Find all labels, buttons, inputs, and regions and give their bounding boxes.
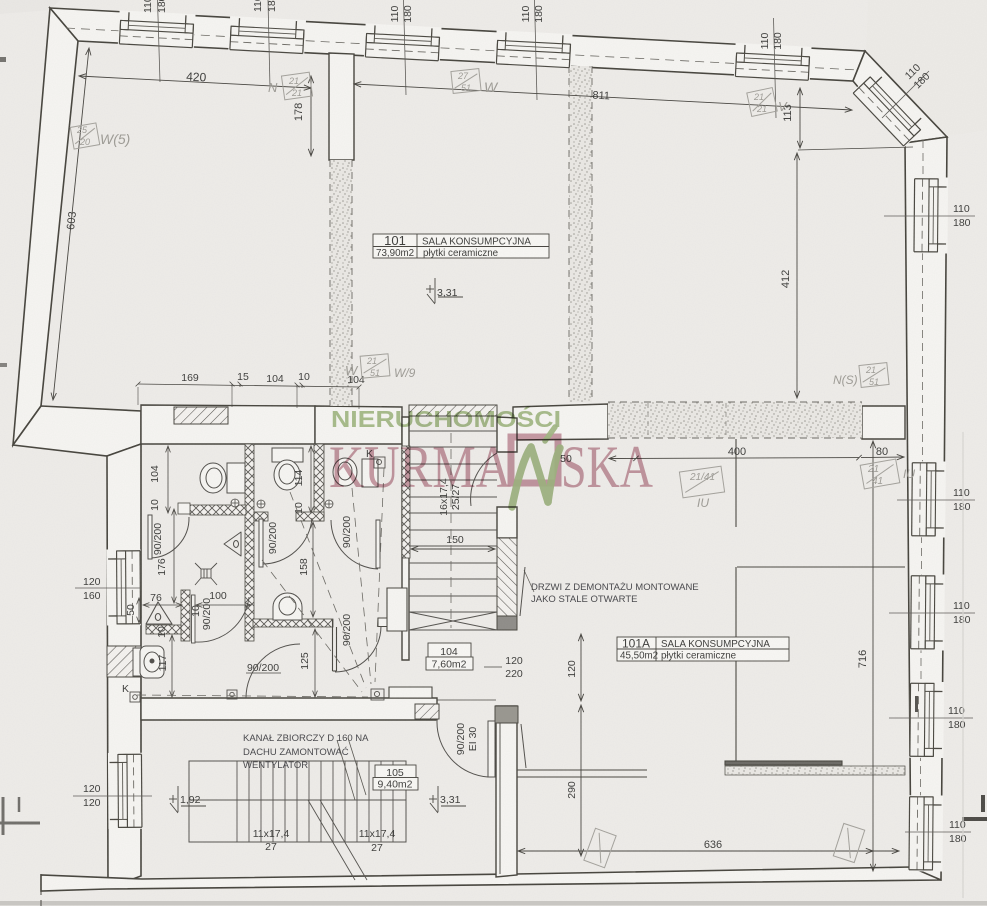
svg-text:811: 811 (592, 90, 610, 103)
svg-text:10: 10 (293, 502, 305, 514)
svg-text:110: 110 (142, 0, 154, 13)
svg-text:21: 21 (867, 464, 879, 475)
svg-text:110: 110 (252, 0, 264, 12)
svg-text:11x17,4: 11x17,4 (359, 828, 396, 840)
svg-text:W(5): W(5) (100, 131, 130, 147)
svg-text:125: 125 (299, 652, 311, 670)
svg-text:73,90m2: 73,90m2 (376, 248, 414, 259)
svg-text:110: 110 (520, 5, 532, 22)
svg-text:płytki ceramiczne: płytki ceramiczne (423, 248, 499, 259)
svg-text:120: 120 (83, 797, 101, 809)
svg-text:20: 20 (79, 137, 90, 147)
svg-text:90/200: 90/200 (341, 614, 353, 646)
svg-text:180: 180 (949, 833, 967, 845)
svg-text:10: 10 (149, 499, 161, 511)
svg-text:90/200: 90/200 (267, 522, 279, 554)
svg-text:W: W (484, 79, 499, 95)
svg-text:220: 220 (505, 668, 523, 680)
svg-text:90/200: 90/200 (201, 598, 213, 630)
svg-text:180: 180 (156, 0, 168, 13)
svg-text:110: 110 (953, 203, 970, 215)
svg-text:400: 400 (728, 446, 746, 458)
svg-text:105: 105 (386, 767, 404, 779)
svg-text:W: W (345, 363, 359, 378)
svg-text:3,31: 3,31 (437, 287, 458, 299)
svg-text:IU: IU (697, 496, 709, 510)
svg-text:N(S): N(S) (833, 373, 858, 387)
svg-text:180: 180 (402, 5, 414, 23)
svg-text:45,50m2: 45,50m2 (620, 651, 658, 662)
svg-text:10: 10 (298, 371, 310, 383)
svg-text:180: 180 (533, 5, 545, 23)
svg-text:1,92: 1,92 (180, 794, 201, 806)
svg-text:110: 110 (953, 487, 970, 499)
svg-text:290: 290 (566, 781, 578, 799)
svg-text:180: 180 (953, 501, 971, 513)
svg-text:7,60m2: 7,60m2 (431, 659, 466, 671)
svg-text:W/9: W/9 (394, 366, 416, 380)
svg-text:N: N (268, 80, 278, 95)
svg-text:110: 110 (759, 32, 771, 49)
svg-text:NIERUCHOMOŚCI: NIERUCHOMOŚCI (331, 405, 561, 432)
svg-text:51: 51 (869, 377, 879, 387)
svg-text:15: 15 (237, 371, 249, 383)
svg-text:25: 25 (76, 125, 88, 135)
svg-text:176: 176 (156, 558, 168, 576)
svg-text:10: 10 (156, 626, 168, 638)
svg-text:DRZWI Z DEMONTAŻU MONTOWANE: DRZWI Z DEMONTAŻU MONTOWANE (531, 582, 699, 593)
svg-text:117: 117 (157, 654, 169, 671)
svg-text:716: 716 (857, 650, 869, 668)
svg-text:płytki ceramiczne: płytki ceramiczne (661, 651, 737, 662)
svg-text:WENTYLATOR: WENTYLATOR (243, 760, 308, 771)
svg-text:21/41: 21/41 (689, 472, 715, 483)
svg-text:27: 27 (265, 841, 277, 853)
svg-text:27: 27 (457, 71, 469, 81)
svg-text:104: 104 (440, 646, 458, 658)
svg-text:160: 160 (83, 590, 101, 602)
svg-text:114: 114 (293, 469, 305, 486)
svg-text:21: 21 (288, 76, 299, 86)
svg-text:51: 51 (461, 83, 471, 93)
svg-text:76: 76 (150, 592, 162, 604)
svg-text:SKA: SKA (561, 434, 653, 500)
svg-text:120: 120 (505, 655, 523, 667)
svg-text:21: 21 (366, 356, 377, 366)
svg-text:EI 30: EI 30 (467, 727, 479, 752)
svg-text:110: 110 (389, 5, 401, 22)
svg-text:90/200: 90/200 (152, 523, 164, 555)
svg-text:21: 21 (291, 88, 302, 98)
svg-text:110: 110 (953, 600, 970, 612)
svg-text:158: 158 (298, 558, 310, 576)
svg-text:V: V (778, 99, 788, 114)
svg-text:KANAŁ ZBIORCZY D 160 NA: KANAŁ ZBIORCZY D 160 NA (243, 733, 369, 744)
svg-text:90/200: 90/200 (341, 516, 353, 548)
svg-text:IU: IU (903, 467, 915, 481)
svg-text:50: 50 (125, 604, 137, 616)
svg-text:169: 169 (181, 372, 199, 384)
svg-text:101: 101 (384, 233, 406, 248)
svg-text:21: 21 (753, 92, 764, 102)
svg-text:51: 51 (370, 368, 380, 378)
svg-text:KURMA: KURMA (329, 434, 511, 500)
svg-text:636: 636 (704, 839, 722, 851)
svg-text:27: 27 (371, 842, 383, 854)
svg-text:90/200: 90/200 (455, 723, 467, 755)
svg-text:DACHU ZAMONTOWAĆ: DACHU ZAMONTOWAĆ (243, 747, 349, 758)
svg-text:JAKO STALE OTWARTE: JAKO STALE OTWARTE (531, 594, 637, 605)
svg-text:180: 180 (266, 0, 278, 12)
svg-text:21: 21 (756, 104, 767, 114)
svg-text:180: 180 (772, 32, 784, 50)
svg-text:120: 120 (566, 660, 578, 678)
svg-text:101A: 101A (622, 637, 650, 651)
svg-text:180: 180 (953, 614, 971, 626)
svg-text:11x17,4: 11x17,4 (253, 828, 290, 840)
svg-text:9,40m2: 9,40m2 (377, 779, 412, 791)
svg-text:420: 420 (186, 69, 207, 84)
svg-text:SALA KONSUMPCYJNA: SALA KONSUMPCYJNA (422, 237, 531, 248)
svg-text:80: 80 (876, 446, 888, 458)
svg-text:178: 178 (293, 103, 305, 121)
svg-text:180: 180 (953, 217, 971, 229)
svg-text:SALA KONSUMPCYJNA: SALA KONSUMPCYJNA (661, 639, 770, 650)
svg-text:412: 412 (780, 270, 792, 288)
svg-text:150: 150 (446, 534, 464, 546)
svg-text:104: 104 (149, 465, 161, 483)
svg-text:21: 21 (865, 365, 876, 375)
svg-text:120: 120 (83, 783, 101, 795)
svg-text:104: 104 (266, 373, 284, 385)
svg-text:603: 603 (65, 211, 79, 231)
svg-text:K: K (122, 683, 129, 695)
svg-text:3,31: 3,31 (440, 794, 461, 806)
svg-text:110: 110 (948, 705, 965, 717)
svg-text:90/200: 90/200 (247, 662, 279, 674)
svg-text:41: 41 (872, 476, 883, 487)
svg-text:120: 120 (83, 576, 101, 588)
